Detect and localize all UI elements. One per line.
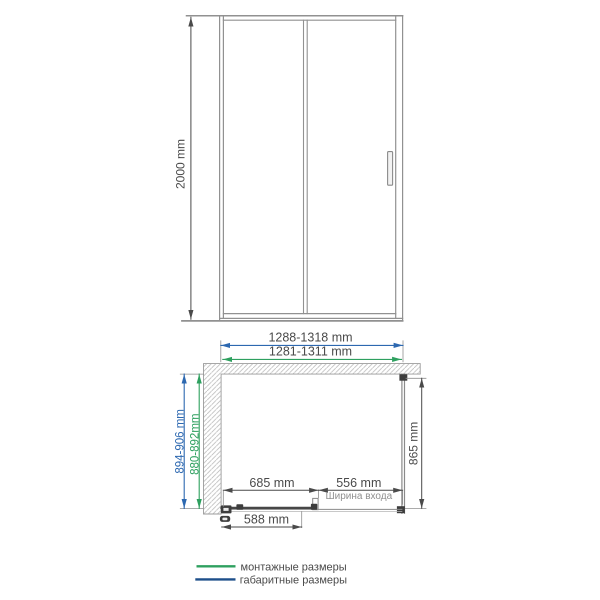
mounting-width-label: 1281-1311 mm [269, 345, 352, 359]
side-depth-label: 865 mm [407, 422, 421, 465]
front-view: 2000 mm [173, 16, 402, 321]
technical-drawing-canvas: 2000 mm 1288-1318 mm [0, 0, 600, 600]
door-handle-front [388, 152, 393, 186]
legend-label-mounting: монтажные размеры [241, 561, 347, 573]
wall-bracket-top [399, 374, 407, 380]
wall-clamp-left [220, 505, 232, 522]
mounting-depth-label: 880-892mm [189, 414, 201, 475]
legend: монтажные размеры габаритные размеры [195, 561, 347, 586]
overall-depth-label: 894-906 mm [174, 409, 186, 474]
door-handle-plan-knob [311, 504, 317, 510]
legend-item-mounting: монтажные размеры [197, 561, 347, 573]
roller-left [236, 504, 243, 509]
height-dimension-label: 2000 mm [173, 139, 187, 189]
shower-enclosure-drawing: 2000 mm 1288-1318 mm [0, 0, 600, 600]
overall-width-label: 1288-1318 mm [268, 330, 352, 344]
legend-item-overall: габаритные размеры [195, 575, 347, 587]
door-frame [182, 16, 403, 321]
entry-caption: Ширина входа [325, 491, 392, 502]
entry-width-label: 556 mm [336, 476, 381, 490]
plan-view: 1288-1318 mm 1281-1311 mm 894-906 mm 880… [174, 330, 426, 527]
legend-label-overall: габаритные размеры [240, 575, 347, 587]
fixed-section-label: 685 mm [249, 476, 294, 490]
sliding-panel-divider [304, 20, 308, 313]
door-panel-label: 588 mm [244, 512, 289, 526]
